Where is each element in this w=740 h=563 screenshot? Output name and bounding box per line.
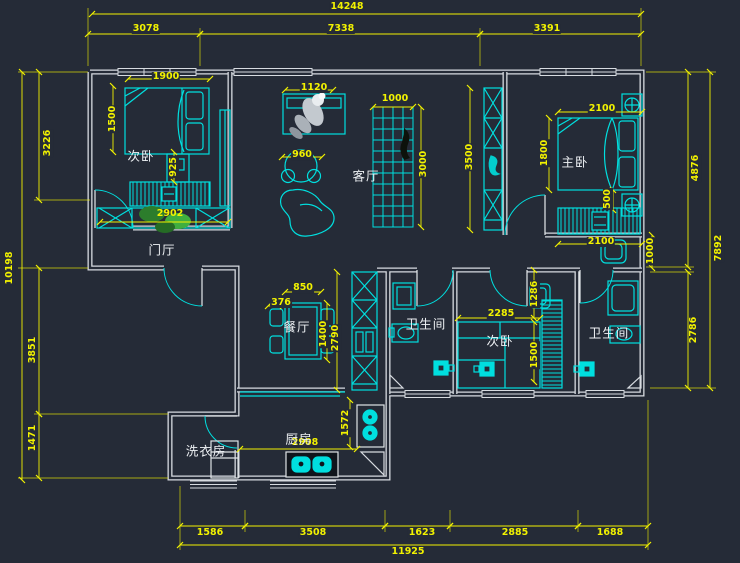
dim-right-total: 7892: [714, 234, 724, 262]
dim-nightstand1: 925: [169, 156, 179, 178]
dim-left-1: 3226: [43, 129, 53, 157]
room-label-entry: 门厅: [148, 240, 175, 259]
furniture: [97, 88, 642, 478]
dim-corridor-1000: 1000: [646, 237, 656, 265]
dim-dining-column: 2790: [331, 324, 341, 352]
bed1: [125, 88, 209, 154]
dim-right-2: 2786: [689, 316, 699, 344]
room-label-dining: 餐厅: [283, 317, 310, 336]
dim-tv-unit: 1120: [300, 83, 328, 93]
sofa: [281, 190, 334, 237]
dim-master-bed-width: 2100: [588, 104, 616, 114]
room-label-master: 主卧: [561, 152, 588, 171]
cad-canvas[interactable]: 14248 3078 7338 3391 3226 10198 3851 147…: [0, 0, 740, 563]
dim-bottom-4: 2885: [501, 528, 529, 538]
room-label-kitchen: 厨房: [285, 429, 312, 448]
extension-lines: [18, 8, 716, 550]
dim-kitchen-depth: 1572: [341, 409, 351, 437]
dim-shelf-width: 1000: [381, 94, 409, 104]
dim-top-total: 14248: [329, 2, 364, 12]
dim-master-bed-depth: 1800: [540, 139, 550, 167]
room-label-bath-right: 卫生间: [589, 323, 630, 342]
dining-column: [352, 272, 377, 390]
dim-bed1-width: 1900: [152, 72, 180, 82]
dim-bed2-width: 2285: [487, 309, 515, 319]
dim-bottom-total: 11925: [390, 547, 425, 557]
dimension-lines: [18, 8, 716, 550]
dim-dining-chair: 376: [270, 298, 292, 308]
room-label-laundry: 洗衣房: [186, 441, 227, 460]
dim-top-2: 7338: [327, 24, 355, 34]
room-label-bedroom-left: 次卧: [127, 146, 154, 165]
dim-left-3: 1471: [28, 424, 38, 452]
dim-bottom-1: 1586: [196, 528, 224, 538]
dim-bottom-2: 3508: [299, 528, 327, 538]
room-label-bedroom-mid: 次卧: [486, 331, 513, 350]
bed2-wardrobe: [542, 300, 562, 388]
room-label-bath-mid: 卫生间: [406, 314, 447, 333]
dim-master-closet: 2100: [587, 237, 615, 247]
dim-top-1: 3078: [132, 24, 160, 34]
living-column: [484, 88, 502, 230]
dim-column-height: 3500: [465, 143, 475, 171]
dim-right-1: 4876: [691, 154, 701, 182]
room-label-living: 客厅: [352, 166, 379, 185]
dim-top-3: 3391: [533, 24, 561, 34]
dim-bottom-5: 1688: [596, 528, 624, 538]
dim-bottom-3: 1623: [408, 528, 436, 538]
dim-desk2: 1286: [530, 280, 540, 308]
dim-left-2: 3851: [28, 336, 38, 364]
dim-gap-500: 500: [603, 188, 613, 210]
dim-bed1-depth: 1500: [108, 105, 118, 133]
dim-dining-depth: 1400: [319, 320, 329, 348]
floor-plan-drawing: [0, 0, 740, 563]
dim-left-total: 10198: [5, 250, 15, 285]
master-wardrobe: [558, 208, 640, 234]
dim-dining-table: 850: [292, 283, 314, 293]
dim-round-chair: 960: [291, 150, 313, 160]
dim-closet1: 2902: [156, 209, 184, 219]
dim-shelf-height: 3000: [419, 150, 429, 178]
dim-bed2-depth: 1500: [530, 341, 540, 369]
